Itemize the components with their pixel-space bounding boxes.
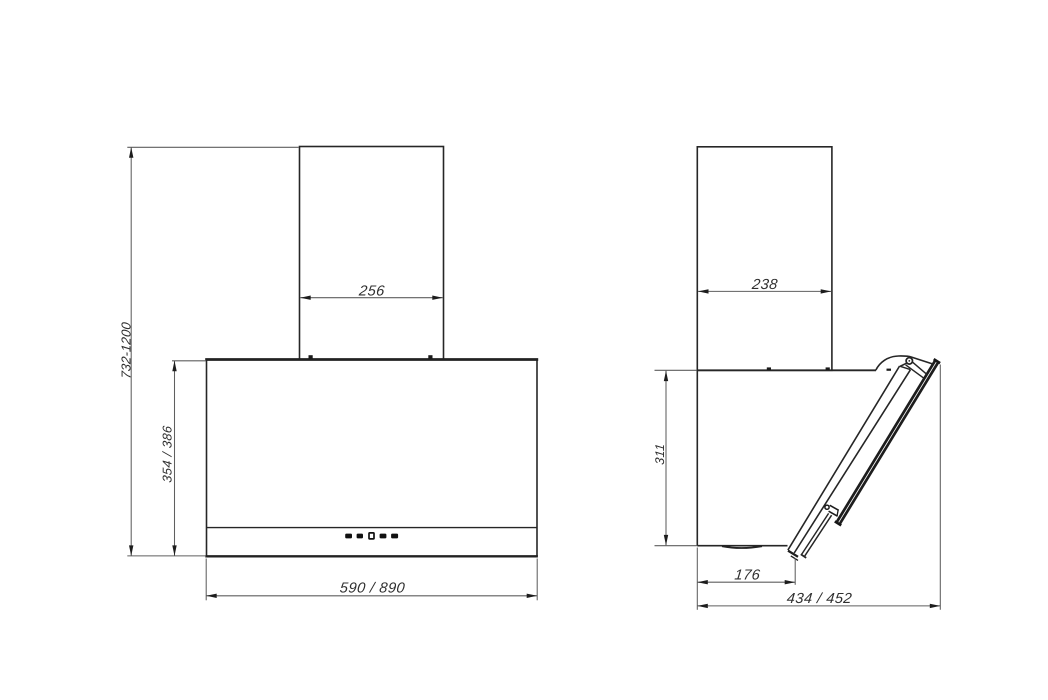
svg-text:311: 311 <box>653 443 667 466</box>
svg-text:434 / 452: 434 / 452 <box>786 591 853 607</box>
svg-text:256: 256 <box>357 284 386 300</box>
svg-text:732-1200: 732-1200 <box>118 321 133 380</box>
svg-text:238: 238 <box>750 277 779 293</box>
svg-text:590 / 890: 590 / 890 <box>339 581 406 597</box>
svg-text:354 / 386: 354 / 386 <box>159 424 174 483</box>
svg-text:176: 176 <box>734 567 762 583</box>
